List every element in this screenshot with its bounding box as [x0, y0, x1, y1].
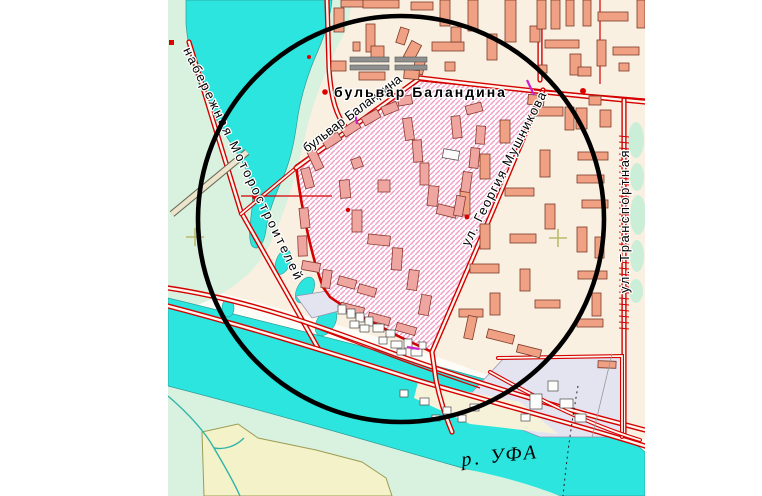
building — [490, 293, 500, 315]
building — [560, 399, 573, 408]
building — [589, 96, 601, 105]
building — [530, 394, 542, 409]
building — [395, 65, 427, 70]
building — [537, 0, 546, 29]
building — [350, 65, 389, 70]
building — [551, 0, 560, 29]
building — [545, 40, 579, 48]
building — [613, 47, 639, 55]
building — [347, 309, 355, 318]
building — [540, 150, 550, 177]
building — [391, 248, 403, 271]
building — [469, 148, 480, 169]
building — [368, 234, 391, 246]
building — [419, 342, 426, 349]
map-canvas[interactable]: набережная Моторостроителей бульвар Бала… — [0, 0, 762, 496]
building — [577, 319, 603, 327]
building — [475, 126, 485, 145]
building — [578, 271, 607, 279]
building — [412, 140, 423, 163]
label-transportnaya: ул. Транспортная — [617, 148, 632, 293]
building — [443, 407, 451, 414]
building — [578, 67, 591, 76]
building — [411, 349, 422, 356]
building — [480, 154, 490, 179]
building — [575, 414, 586, 422]
building — [577, 227, 587, 252]
building — [420, 163, 429, 185]
building — [451, 27, 461, 42]
building — [395, 57, 427, 62]
building — [566, 0, 574, 26]
building — [545, 204, 555, 229]
building — [391, 341, 402, 348]
building — [359, 72, 385, 80]
building — [432, 42, 464, 51]
building — [598, 12, 628, 21]
building — [619, 63, 629, 71]
building — [548, 381, 558, 391]
building — [521, 414, 530, 421]
building — [298, 236, 308, 256]
building — [352, 210, 362, 232]
building — [365, 317, 373, 326]
label-balandina-horizontal: бульвар Баландина — [334, 84, 507, 100]
building — [363, 0, 399, 8]
building — [356, 313, 364, 322]
building — [338, 305, 346, 314]
building — [583, 0, 591, 26]
building — [458, 415, 466, 422]
building — [445, 62, 455, 71]
building — [397, 349, 406, 355]
building — [350, 57, 389, 62]
building — [600, 110, 611, 127]
building — [299, 208, 310, 229]
building — [535, 300, 560, 308]
building — [592, 293, 601, 316]
building — [637, 0, 645, 28]
building — [505, 188, 534, 196]
building — [411, 2, 433, 10]
building — [378, 180, 390, 192]
building — [331, 61, 346, 71]
building — [373, 324, 384, 332]
building — [321, 269, 332, 288]
building — [427, 186, 439, 207]
building — [360, 325, 369, 332]
building — [400, 390, 408, 397]
building — [350, 321, 359, 328]
building — [420, 398, 429, 405]
building — [386, 330, 395, 337]
building — [353, 42, 360, 51]
building — [598, 361, 616, 369]
map-screenshot: набережная Моторостроителей бульвар Бала… — [0, 0, 762, 496]
building — [451, 116, 462, 139]
building — [510, 234, 536, 243]
building — [379, 337, 387, 344]
building — [597, 40, 606, 66]
building — [500, 120, 510, 143]
building — [339, 180, 351, 199]
building — [404, 69, 420, 79]
building — [520, 269, 530, 291]
building — [470, 264, 499, 273]
building — [505, 0, 516, 42]
